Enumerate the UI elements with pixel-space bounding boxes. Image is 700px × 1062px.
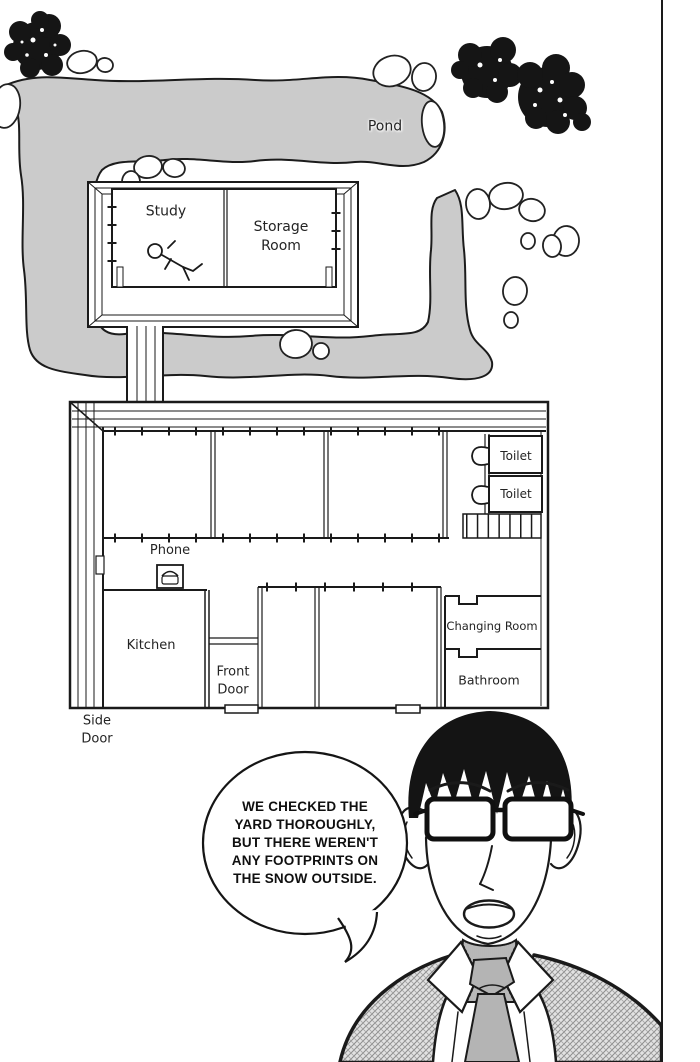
toilet-icon <box>472 447 488 465</box>
rear-doorstep <box>396 705 420 713</box>
panel-artwork <box>0 0 700 1062</box>
front-doorstep <box>225 705 258 713</box>
speech-bubble <box>203 752 407 962</box>
phone-icon <box>157 565 183 588</box>
tree-top-right-icon <box>451 37 591 134</box>
toilet-icon <box>472 486 488 504</box>
stairs <box>463 514 541 538</box>
connecting-corridor <box>127 326 163 404</box>
side-wall-notch <box>96 556 104 574</box>
toilet-room-bottom <box>489 476 542 512</box>
main-house-floorplan <box>70 402 548 713</box>
tie-blade <box>465 994 519 1062</box>
study-building <box>88 182 358 327</box>
toilet-room-top <box>489 436 542 473</box>
tree-top-left-icon <box>4 11 71 78</box>
manga-page: Pond Study Storage Room Toilet Toilet Ph… <box>0 0 700 1062</box>
